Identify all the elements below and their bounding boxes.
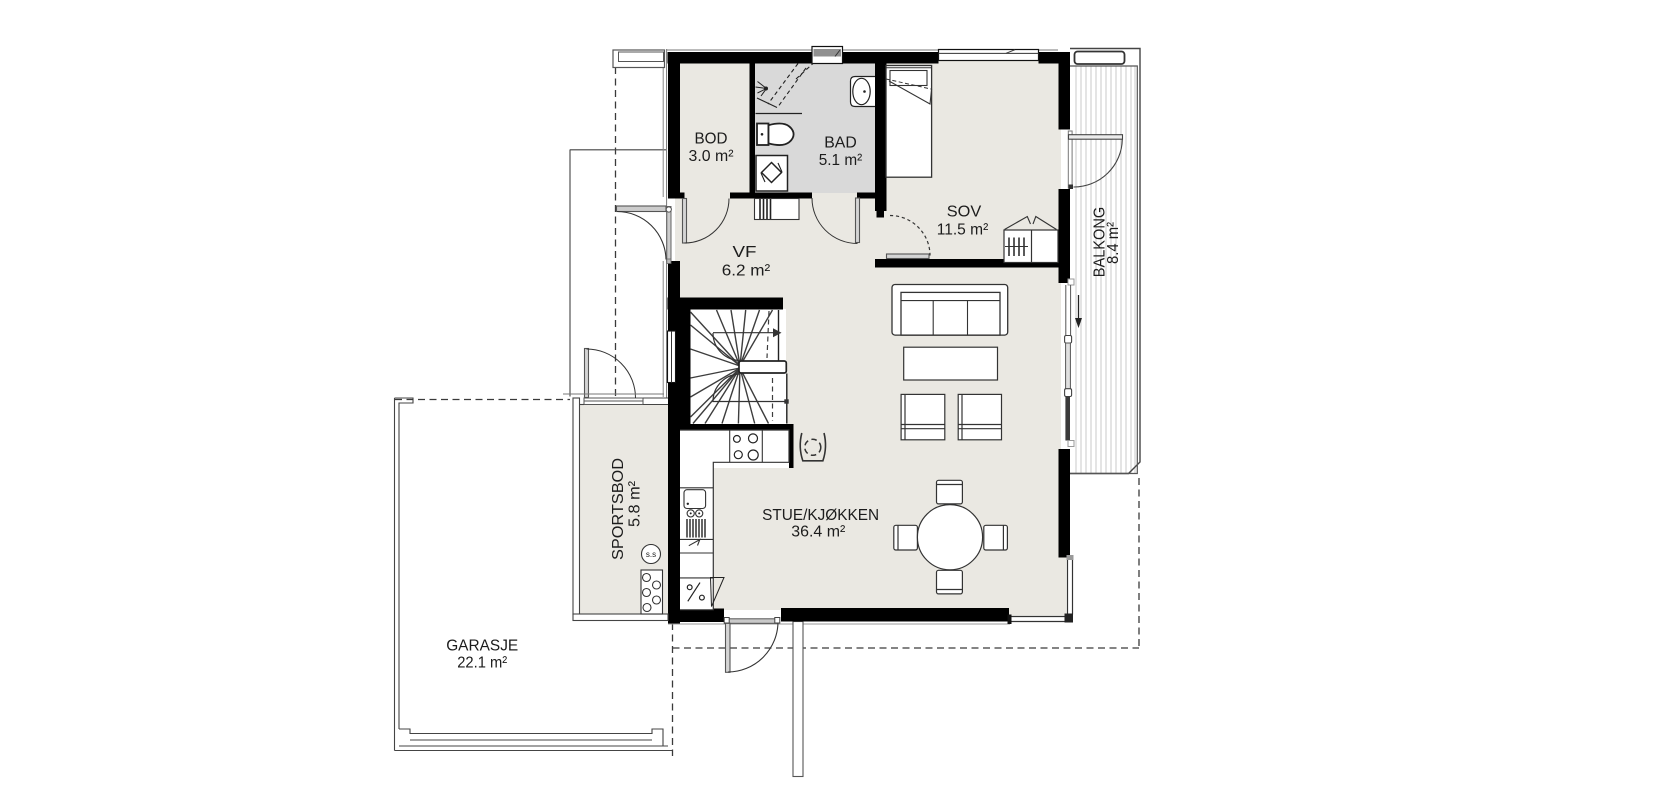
svg-text:22.1 m²: 22.1 m² (457, 655, 508, 672)
svg-text:3.0 m²: 3.0 m² (689, 148, 735, 165)
svg-text:5.8 m²: 5.8 m² (627, 480, 644, 527)
svg-text:6.2 m²: 6.2 m² (722, 263, 771, 280)
svg-text:8.4 m²: 8.4 m² (1105, 221, 1122, 264)
svg-text:36.4 m²: 36.4 m² (791, 524, 846, 541)
svg-text:BOD: BOD (695, 131, 728, 148)
svg-text:11.5 m²: 11.5 m² (937, 222, 989, 239)
svg-text:s.s: s.s (646, 550, 656, 559)
svg-text:SPORTSBOD: SPORTSBOD (610, 458, 627, 560)
svg-text:GARASJE: GARASJE (446, 638, 518, 655)
svg-text:VF: VF (733, 244, 757, 261)
svg-text:STUE/KJØKKEN: STUE/KJØKKEN (762, 507, 879, 524)
svg-text:BAD: BAD (824, 135, 857, 152)
svg-text:SOV: SOV (947, 204, 982, 221)
svg-text:5.1 m²: 5.1 m² (819, 152, 863, 169)
